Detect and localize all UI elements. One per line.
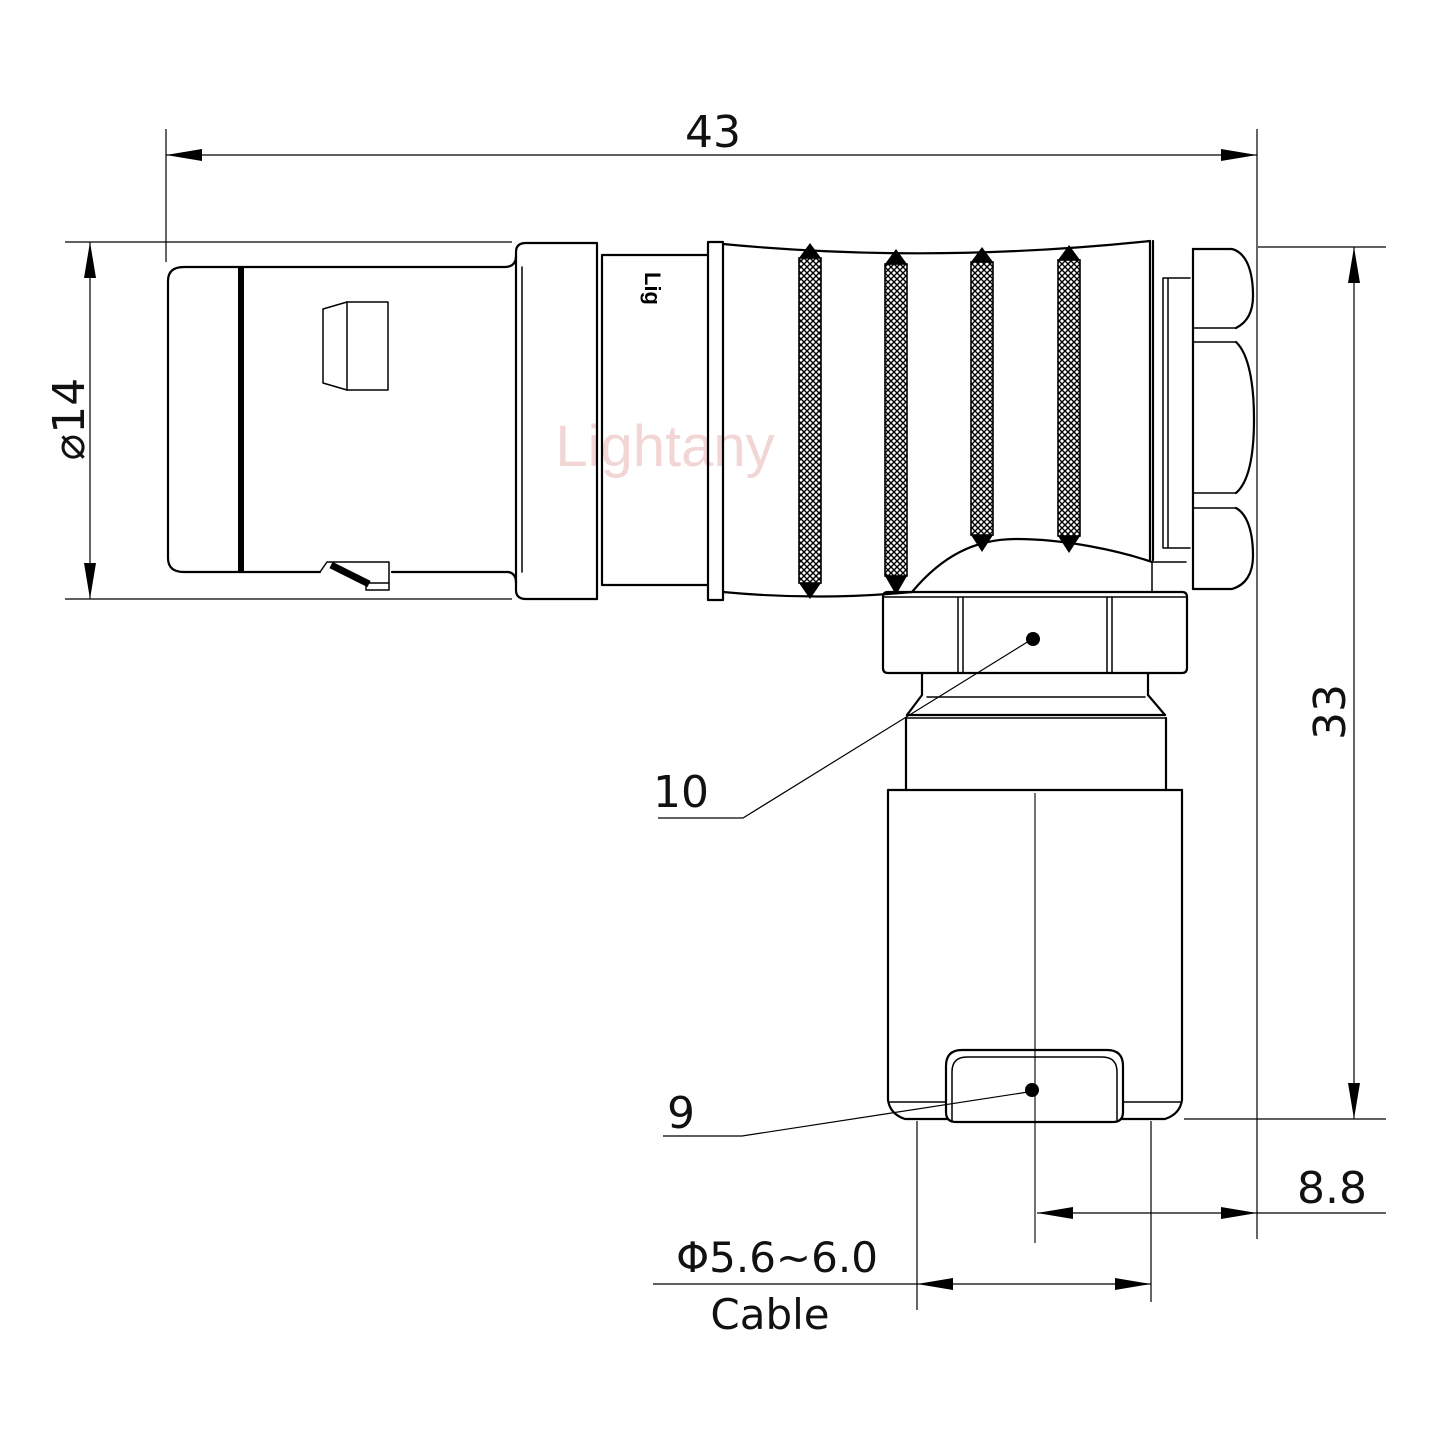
engraving-text: Lig	[640, 272, 665, 305]
knurled-section	[723, 241, 1190, 599]
dim-33-label: 33	[1305, 684, 1356, 740]
callout-9-dot	[1025, 1083, 1039, 1097]
dim-8-8-label: 8.8	[1297, 1163, 1367, 1214]
watermark-text: Lightany	[555, 414, 774, 479]
knurl-band	[1058, 245, 1080, 553]
connector-side-view: Lig	[168, 241, 1254, 1243]
knurl-band	[799, 243, 821, 599]
dim-cable-diameter-label: Φ5.6~6.0	[676, 1233, 878, 1282]
connector-drawing-canvas: Lightany	[0, 0, 1440, 1440]
dim-cable-word-label: Cable	[710, 1290, 829, 1339]
key-tab	[323, 302, 388, 390]
callout-10-label: 10	[653, 767, 709, 818]
dimension-center-to-face: 8.8	[1037, 1163, 1386, 1219]
dimension-overall-height: 33	[1184, 247, 1386, 1119]
dim-diameter-14-label: ⌀14	[44, 378, 95, 460]
callout-9-label: 9	[667, 1088, 695, 1139]
technical-drawing-page: Lightany	[0, 0, 1440, 1440]
dim-43-label: 43	[685, 107, 741, 158]
callout-10-dot	[1026, 632, 1040, 646]
dimension-body-diameter: ⌀14	[44, 242, 512, 599]
sleeve-index-line	[238, 267, 244, 572]
knurl-band	[971, 247, 993, 552]
front-sleeve	[168, 256, 516, 590]
knurl-band	[885, 249, 907, 595]
latch	[320, 562, 389, 590]
dimension-cable: Φ5.6~6.0 Cable	[653, 1121, 1151, 1339]
end-cap	[1193, 249, 1254, 589]
